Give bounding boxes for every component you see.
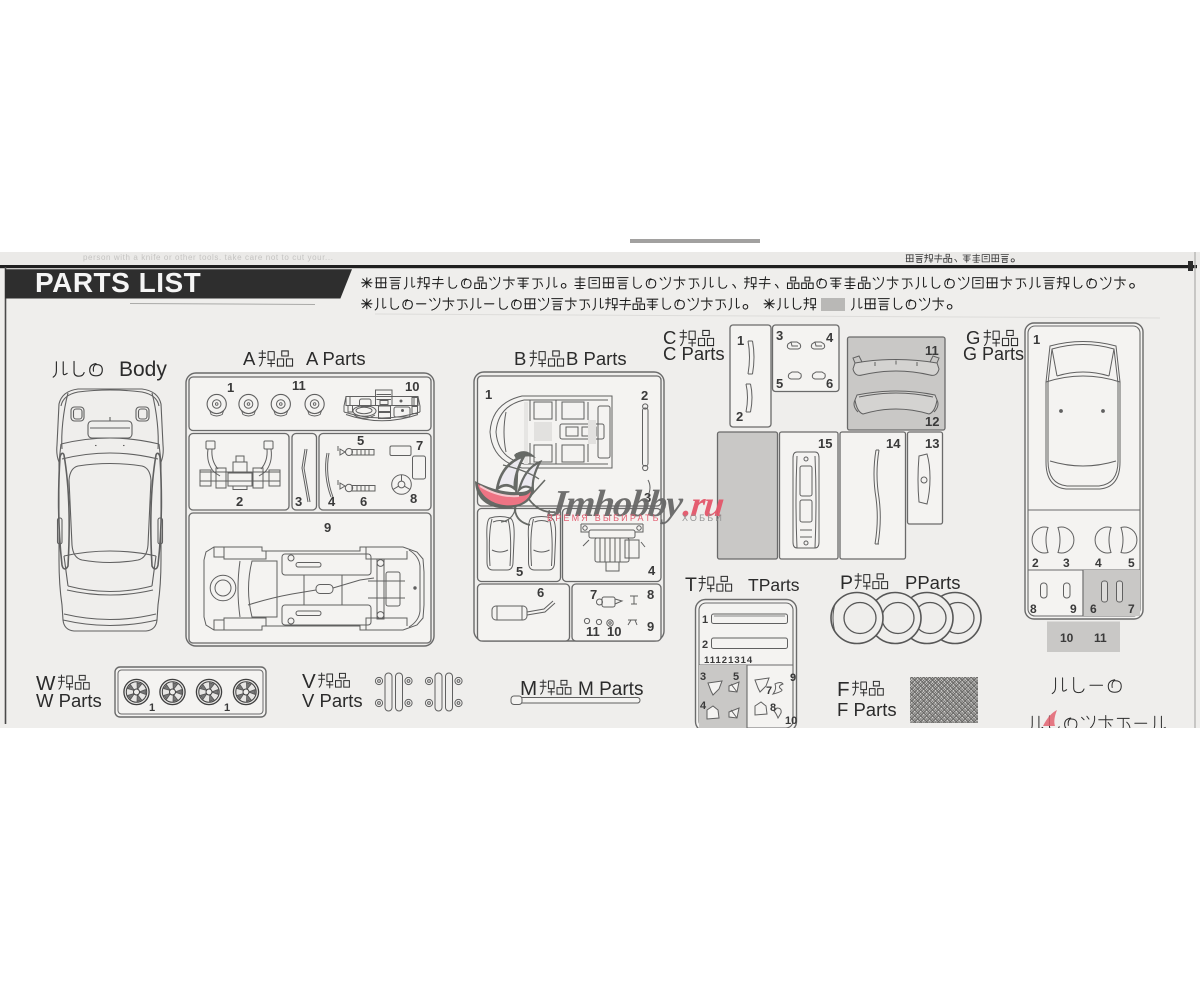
svg-text:6: 6: [537, 585, 544, 600]
svg-text:4: 4: [826, 330, 834, 345]
svg-text:ХОББИ: ХОББИ: [682, 513, 724, 523]
svg-text:8: 8: [770, 702, 776, 714]
svg-text:2: 2: [702, 639, 708, 651]
svg-text:7: 7: [590, 587, 597, 602]
svg-text:14: 14: [886, 436, 901, 451]
svg-text:T: T: [685, 574, 697, 596]
svg-text:4: 4: [328, 494, 336, 509]
svg-text:PParts: PParts: [905, 572, 961, 593]
svg-text:F: F: [837, 678, 850, 701]
svg-text:M: M: [520, 677, 537, 700]
svg-text:2: 2: [641, 388, 648, 403]
svg-text:10: 10: [785, 715, 797, 727]
svg-text:M Parts: M Parts: [578, 679, 643, 700]
svg-text:B Parts: B Parts: [566, 348, 627, 369]
svg-text:13: 13: [925, 436, 939, 451]
svg-text:5: 5: [733, 671, 739, 683]
svg-text:PARTS LIST: PARTS LIST: [35, 267, 201, 298]
svg-text:F Parts: F Parts: [837, 699, 897, 720]
svg-text:1: 1: [737, 333, 744, 348]
svg-text:4: 4: [700, 700, 707, 712]
svg-text:3: 3: [700, 671, 706, 683]
svg-text:11: 11: [925, 343, 939, 358]
svg-text:10: 10: [1060, 631, 1074, 645]
svg-text:11: 11: [1094, 631, 1107, 645]
svg-text:9: 9: [647, 619, 654, 634]
svg-text:1: 1: [1033, 332, 1040, 347]
svg-text:P: P: [840, 572, 853, 594]
svg-text:1: 1: [702, 614, 708, 626]
svg-text:V Parts: V Parts: [302, 690, 363, 711]
svg-text:1: 1: [224, 702, 230, 714]
svg-text:Body: Body: [119, 358, 167, 381]
svg-text:7: 7: [1128, 602, 1135, 616]
svg-text:W Parts: W Parts: [36, 690, 102, 711]
svg-text:A: A: [243, 348, 256, 369]
svg-text:11121314: 11121314: [704, 655, 753, 666]
svg-text:2: 2: [236, 494, 243, 509]
svg-text:11: 11: [292, 378, 306, 393]
svg-text:4: 4: [1095, 556, 1102, 570]
svg-text:6: 6: [360, 494, 367, 509]
svg-text:8: 8: [647, 587, 654, 602]
svg-text:B: B: [514, 348, 526, 369]
svg-text:ВРЕМЯ ВЫБИРАТЬ: ВРЕМЯ ВЫБИРАТЬ: [547, 513, 661, 523]
svg-text:2: 2: [1032, 556, 1039, 570]
svg-text:10: 10: [405, 379, 419, 394]
svg-text:5: 5: [776, 376, 783, 391]
svg-text:15: 15: [818, 436, 832, 451]
svg-text:4: 4: [648, 563, 656, 578]
svg-text:9: 9: [1070, 602, 1077, 616]
svg-text:5: 5: [516, 564, 523, 579]
svg-text:2: 2: [736, 409, 743, 424]
svg-text:7: 7: [416, 438, 423, 453]
svg-text:3: 3: [295, 494, 302, 509]
svg-text:8: 8: [410, 491, 417, 506]
svg-text:9: 9: [790, 672, 796, 684]
svg-text:person with a knife or other t: person with a knife or other tools. take…: [83, 253, 334, 262]
svg-text:1: 1: [149, 702, 155, 714]
svg-text:C Parts: C Parts: [663, 343, 725, 364]
svg-text:9: 9: [324, 520, 331, 535]
svg-text:3: 3: [776, 328, 783, 343]
svg-text:A Parts: A Parts: [306, 348, 366, 369]
svg-text:8: 8: [1030, 602, 1037, 616]
svg-text:1: 1: [227, 380, 234, 395]
svg-text:3: 3: [1063, 556, 1070, 570]
svg-text:5: 5: [357, 433, 364, 448]
svg-text:5: 5: [1128, 556, 1135, 570]
svg-text:12: 12: [925, 414, 939, 429]
svg-text:G Parts: G Parts: [963, 344, 1024, 364]
svg-text:6: 6: [826, 376, 833, 391]
svg-text:6: 6: [1090, 602, 1097, 616]
svg-text:11: 11: [586, 624, 600, 639]
svg-text:1: 1: [485, 387, 492, 402]
svg-text:7: 7: [766, 685, 772, 697]
svg-text:TParts: TParts: [748, 575, 800, 595]
